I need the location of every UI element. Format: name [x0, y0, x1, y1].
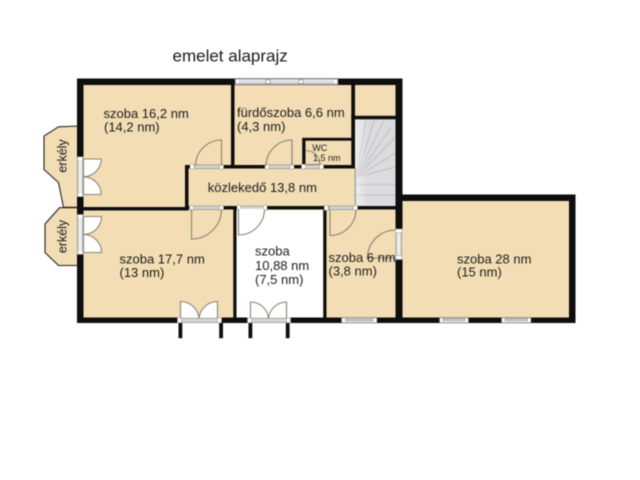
svg-text:közlekedő 13,8 nm: közlekedő 13,8 nm: [208, 180, 317, 195]
svg-text:szoba: szoba: [255, 243, 290, 258]
svg-text:erkély: erkély: [56, 219, 70, 253]
svg-text:(7,5 nm): (7,5 nm): [255, 272, 303, 287]
svg-text:WC: WC: [312, 143, 327, 153]
svg-text:(3,8 nm): (3,8 nm): [329, 263, 377, 278]
svg-text:(15 nm): (15 nm): [457, 265, 502, 280]
svg-text:emelet alaprajz: emelet alaprajz: [173, 47, 288, 66]
svg-text:fürdőszoba 6,6 nm: fürdőszoba 6,6 nm: [237, 105, 345, 120]
svg-text:(4,3 nm): (4,3 nm): [237, 119, 285, 134]
svg-text:(14,2 nm): (14,2 nm): [104, 119, 160, 134]
svg-text:10,88 nm: 10,88 nm: [255, 258, 309, 273]
svg-text:(13 nm): (13 nm): [120, 265, 165, 280]
svg-text:1,5 nm: 1,5 nm: [313, 153, 341, 163]
svg-text:erkély: erkély: [56, 139, 70, 173]
